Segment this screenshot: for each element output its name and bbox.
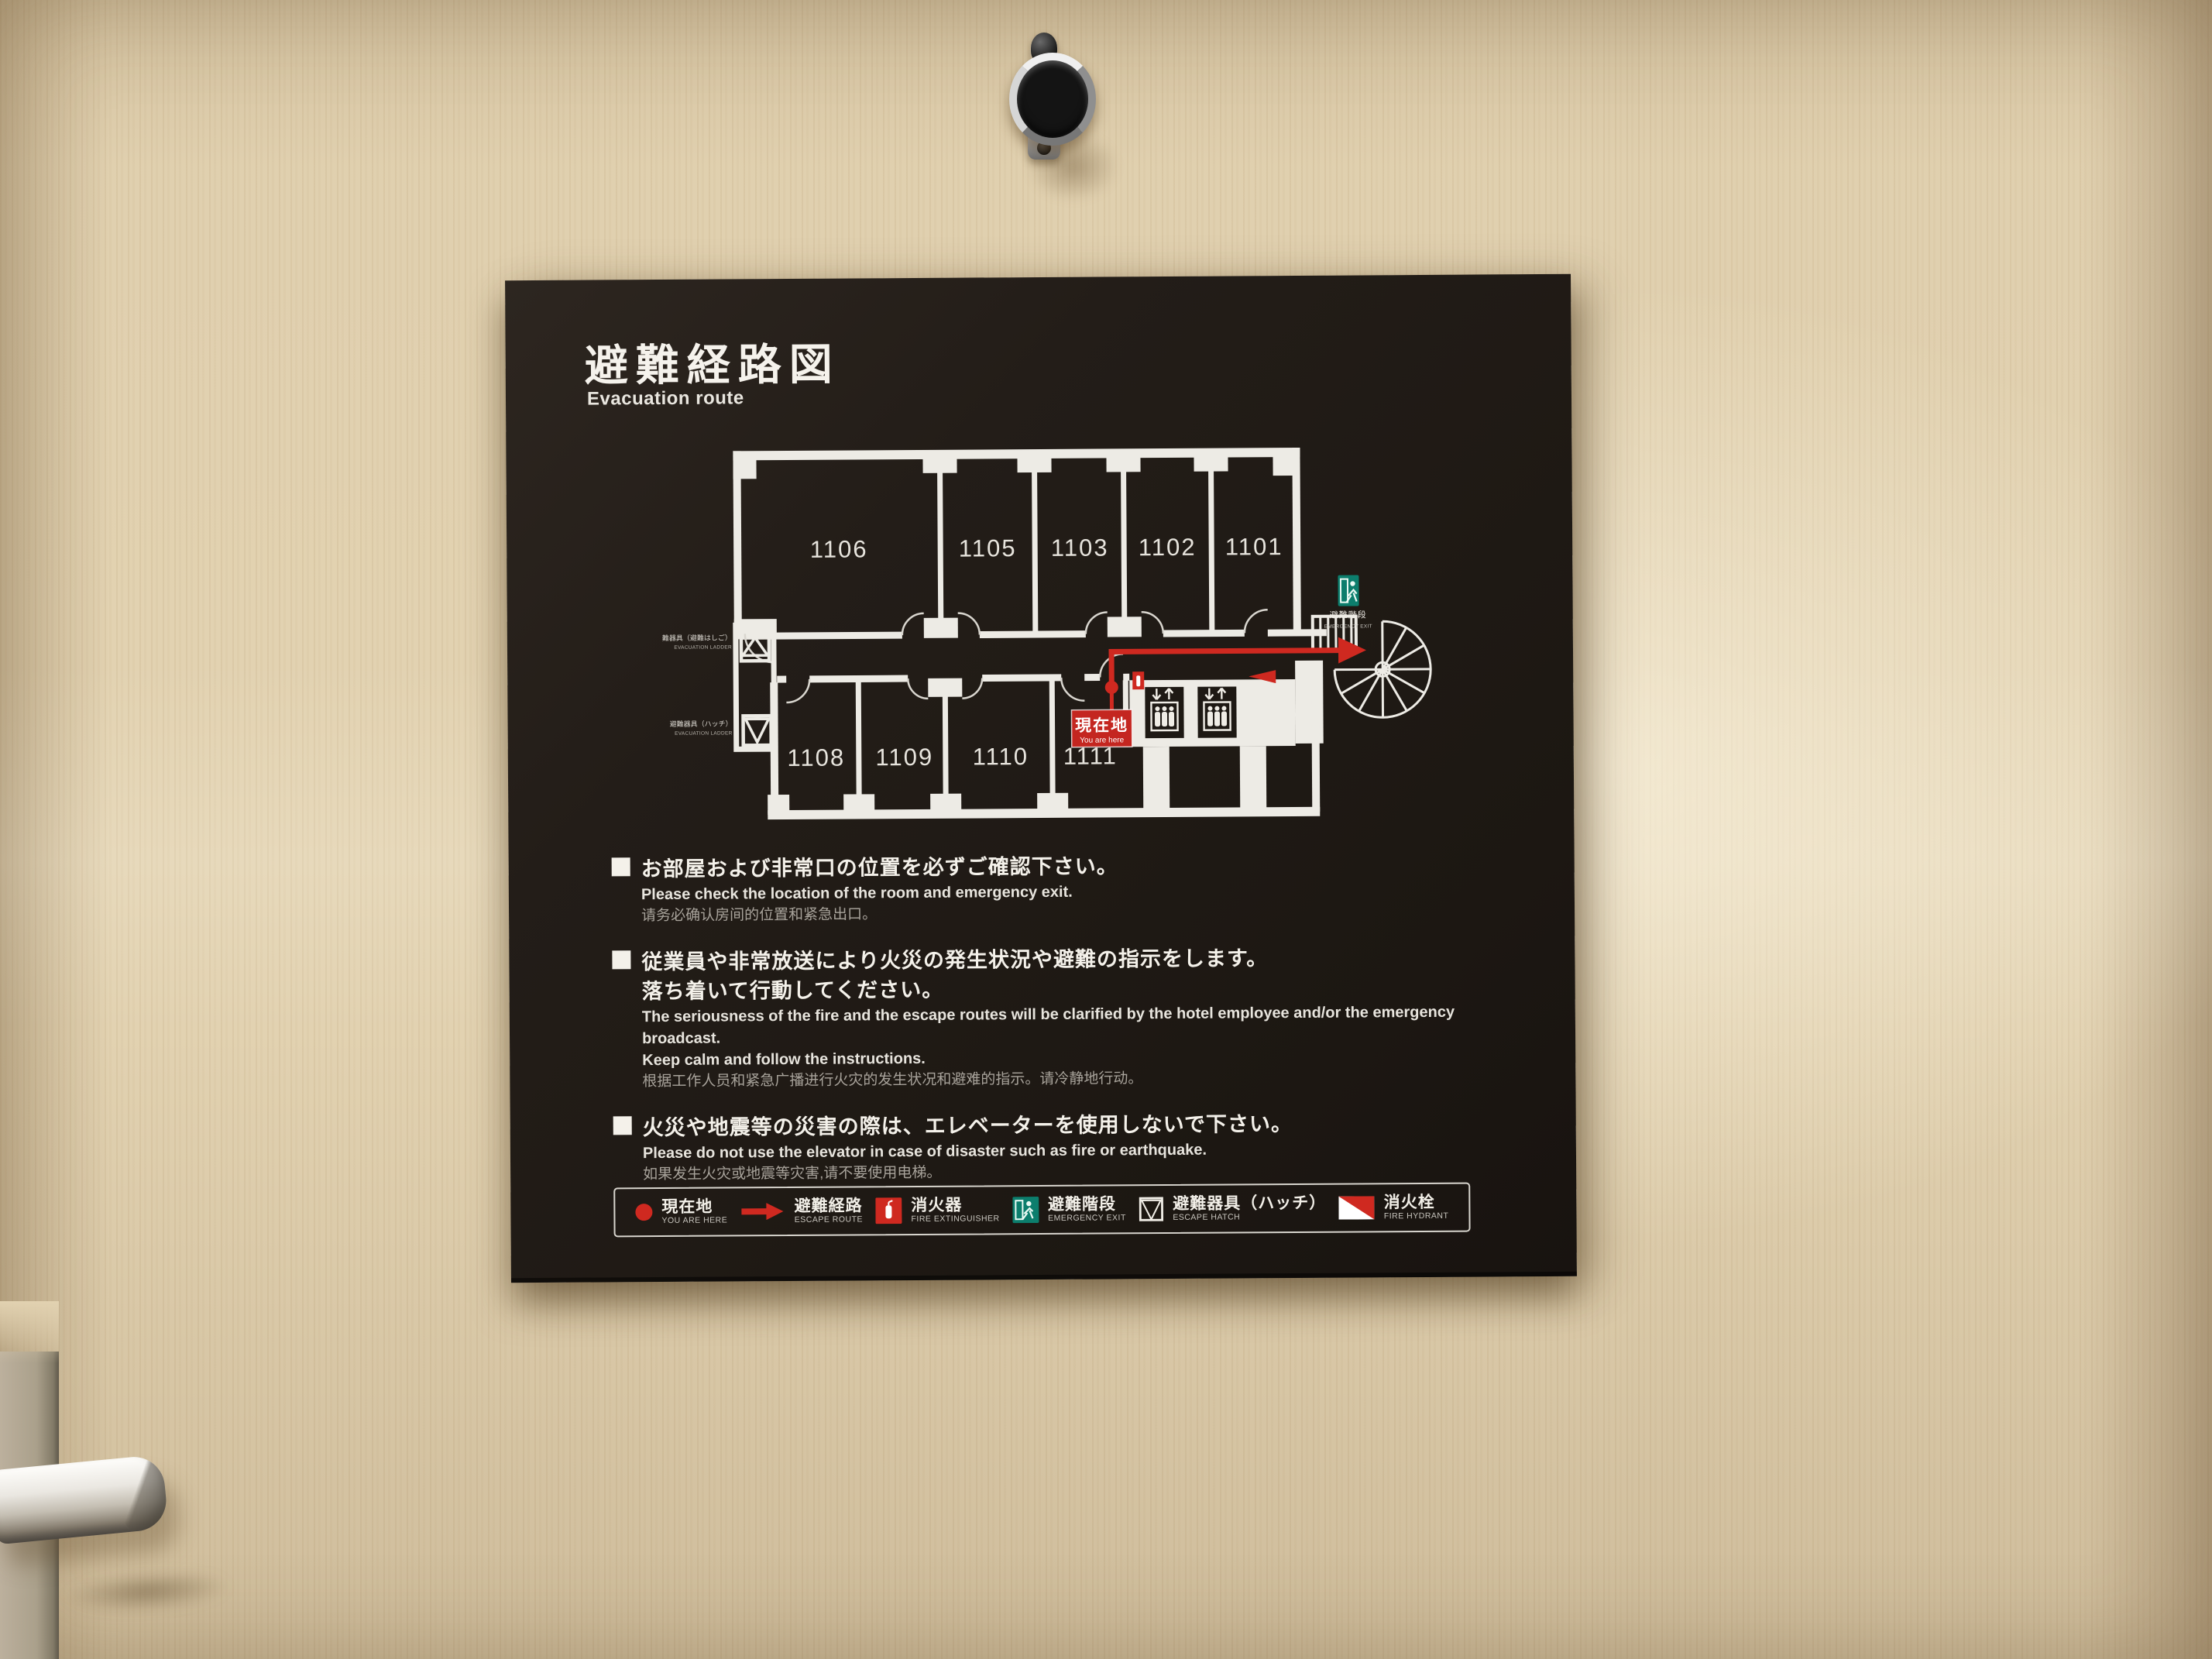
you-are-here-ja: 現在地 xyxy=(1075,716,1128,734)
legend-ja: 消火栓 xyxy=(1384,1194,1449,1211)
notice-ja: お部屋および非常口の位置を必ずご確認下さい。 xyxy=(641,854,1118,881)
legend-en: FIRE EXTINGUISHER xyxy=(911,1214,999,1224)
stair-exit-ja: 避難階段 xyxy=(1330,609,1367,620)
room-number: 1105 xyxy=(959,534,1017,562)
room-number: 1111 xyxy=(1063,742,1118,769)
notice-no-elevator: 火災や地震等の災害の際は、エレベーターを使用しないで下さい。 Please do… xyxy=(613,1108,1489,1186)
you-are-here-dot-icon xyxy=(635,1204,652,1221)
door-edge-fade xyxy=(0,1301,59,1363)
door-hook-icon[interactable] xyxy=(1009,53,1096,146)
bullet-icon xyxy=(612,857,630,876)
fire-hydrant-icon xyxy=(1339,1196,1375,1219)
legend-item-fire-hydrant: 消火栓 FIRE HYDRANT xyxy=(1339,1194,1449,1221)
you-are-here-box: 現在地 You are here xyxy=(1071,709,1132,747)
notice-ja: 従業員や非常放送により火災の発生状況や避難の指示をします。 xyxy=(641,946,1268,974)
room-number: 1108 xyxy=(787,744,845,771)
legend-ja: 避難経路 xyxy=(795,1197,863,1215)
notice-check-location: お部屋および非常口の位置を必ずご確認下さい。 Please check the … xyxy=(612,849,1488,927)
sign-title-en: Evacuation route xyxy=(587,387,744,410)
notice-en: The seriousness of the fire and the esca… xyxy=(613,1001,1488,1049)
floorplan: 避難器具（避難はしご） EVACUATION LADDER 避難器具（ハッチ） … xyxy=(661,441,1437,840)
stair-exit-en: EMERGENCY EXIT xyxy=(1324,623,1372,629)
legend-en: ESCAPE HATCH xyxy=(1173,1211,1326,1222)
legend-ja: 消火器 xyxy=(911,1197,999,1214)
legend-ja: 避難器具（ハッチ） xyxy=(1173,1194,1326,1212)
evacuation-sign: 避難経路図 Evacuation route xyxy=(505,274,1577,1283)
room-number: 1102 xyxy=(1139,534,1197,561)
emergency-exit-sign: 避難階段 EMERGENCY EXIT xyxy=(1324,575,1372,629)
fire-extinguisher-marker xyxy=(1132,671,1144,689)
legend-item-you-are-here: 現在地 YOU ARE HERE xyxy=(635,1198,727,1226)
ladder-label-ja: 避難器具（避難はしご） xyxy=(661,633,732,642)
fire-extinguisher-icon xyxy=(875,1197,902,1224)
legend-item-emergency-exit: 避難階段 EMERGENCY EXIT xyxy=(1012,1196,1126,1224)
legend-en: EMERGENCY EXIT xyxy=(1048,1213,1126,1224)
escape-hatch-icon xyxy=(1139,1197,1163,1221)
bullet-icon xyxy=(612,950,630,969)
notice-zh: 根据工作人员和紧急广播进行火灾的发生状况和避难的指示。请冷静地行动。 xyxy=(613,1066,1488,1093)
legend-en: FIRE HYDRANT xyxy=(1384,1211,1449,1221)
notice-zh: 如果发生火灾或地震等灾害,请不要使用电梯。 xyxy=(613,1159,1489,1186)
door-photo: 避難経路図 Evacuation route xyxy=(0,0,2212,1659)
notice-ja: 火災や地震等の災害の際は、エレベーターを使用しないで下さい。 xyxy=(643,1112,1293,1139)
legend-ja: 避難階段 xyxy=(1048,1196,1126,1214)
ladder-label-en: EVACUATION LADDER xyxy=(674,644,732,650)
spiral-staircase xyxy=(1313,616,1431,718)
legend-item-escape-hatch: 避難器具（ハッチ） ESCAPE HATCH xyxy=(1139,1194,1326,1222)
escape-hatch-icon xyxy=(744,716,771,745)
emergency-exit-icon xyxy=(1012,1197,1039,1223)
hatch-label-en: EVACUATION LADDER xyxy=(675,730,733,736)
handle-shadow xyxy=(29,1557,265,1627)
notice-zh: 请务必确认房间的位置和紧急出口。 xyxy=(612,900,1487,927)
room-number: 1101 xyxy=(1225,533,1283,560)
sign-title-ja: 避難経路図 xyxy=(584,330,840,394)
legend-en: YOU ARE HERE xyxy=(661,1215,727,1226)
legend-item-fire-extinguisher: 消火器 FIRE EXTINGUISHER xyxy=(875,1197,999,1224)
room-number: 1110 xyxy=(973,743,1029,770)
escape-route-arrow-icon xyxy=(740,1200,785,1223)
room-number: 1109 xyxy=(875,744,933,771)
legend-en: ESCAPE ROUTE xyxy=(795,1214,863,1225)
hatch-label-ja: 避難器具（ハッチ） xyxy=(670,719,733,727)
you-are-here-dot xyxy=(1105,681,1118,694)
room-number: 1106 xyxy=(810,535,868,562)
bullet-icon xyxy=(613,1116,632,1135)
rescue-equipment-annex: 避難器具（避難はしご） EVACUATION LADDER 避難器具（ハッチ） … xyxy=(661,625,774,750)
legend-item-escape-route: 避難経路 ESCAPE ROUTE xyxy=(740,1197,863,1225)
legend: 現在地 YOU ARE HERE 避難経路 ESCAPE ROUTE 消火器 F… xyxy=(613,1183,1470,1238)
notice-instructions: 従業員や非常放送により火災の発生状況や避難の指示をします。 落ち着いて行動してく… xyxy=(612,942,1488,1093)
legend-ja: 現在地 xyxy=(661,1198,727,1216)
notices: お部屋および非常口の位置を必ずご確認下さい。 Please check the … xyxy=(612,849,1489,1206)
room-number: 1103 xyxy=(1051,534,1109,561)
door-handle[interactable] xyxy=(0,1454,169,1544)
